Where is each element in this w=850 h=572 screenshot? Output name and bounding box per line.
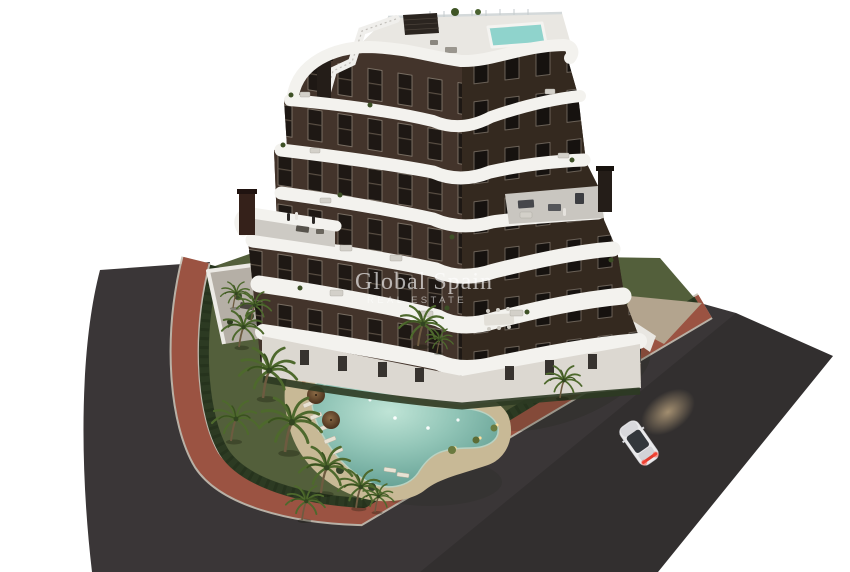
- render-canvas: Global Spain REAL ESTATE: [0, 0, 850, 572]
- architectural-render: Global Spain REAL ESTATE: [0, 0, 850, 572]
- roof-plant: [451, 8, 459, 16]
- deck-shrub: [448, 446, 456, 454]
- dining-table: [484, 313, 515, 326]
- watermark-subtitle: REAL ESTATE: [367, 295, 467, 306]
- underwater-light: [393, 416, 397, 420]
- terrace-sofa: [518, 199, 535, 208]
- chimney-right: [598, 168, 612, 212]
- umbrella-pole: [330, 419, 332, 421]
- chimney-left-cap: [237, 189, 257, 194]
- roof-furniture: [430, 40, 438, 45]
- deck-shrub: [491, 425, 498, 432]
- roof-plant: [475, 9, 481, 15]
- underwater-light: [426, 426, 430, 430]
- terrace-sofa: [575, 193, 584, 204]
- roof-furniture: [445, 47, 457, 53]
- umbrella-pole: [315, 394, 317, 396]
- terrace-sofa: [316, 229, 324, 234]
- deck-shrub: [473, 437, 480, 444]
- person: [287, 213, 290, 221]
- terrace-sofa: [548, 204, 561, 211]
- person: [312, 216, 315, 224]
- underwater-light: [456, 418, 459, 421]
- chimney-left: [239, 191, 255, 235]
- watermark-title: Global Spain: [355, 269, 493, 295]
- person: [563, 208, 566, 216]
- person: [295, 212, 298, 220]
- chimney-right-cap: [596, 166, 614, 171]
